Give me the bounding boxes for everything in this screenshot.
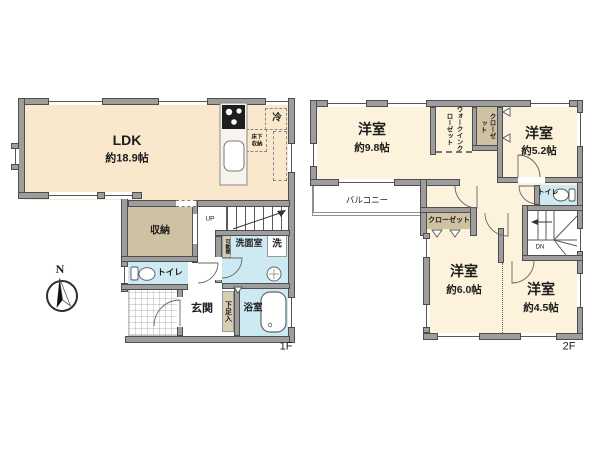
window-bedroom-se-south bbox=[520, 333, 557, 340]
window-bedroom-sw-west-2 bbox=[423, 304, 430, 328]
entrance-porch-tiles bbox=[128, 289, 180, 336]
bedroom-se-size-label: 約4.5帖 bbox=[523, 302, 559, 314]
window-bedroom-ne-east bbox=[577, 112, 583, 147]
wall-closet-north-east bbox=[497, 107, 503, 183]
closet-north-label: クローゼット bbox=[478, 113, 496, 139]
bathroom-label: 浴室 bbox=[243, 304, 262, 315]
wall-1f-west bbox=[18, 98, 25, 199]
wall-stairs2f-north bbox=[522, 205, 583, 211]
wall-corridor-stub bbox=[498, 228, 504, 263]
wall-1f-ldk-hall bbox=[128, 200, 290, 207]
wall-stairs2f-west bbox=[522, 205, 528, 258]
floor2-label: 2F bbox=[563, 341, 576, 354]
bedroom-sw-label: 洋室 bbox=[450, 263, 478, 279]
opening-washroom-door bbox=[215, 257, 222, 280]
floor-plan: LDK 約18.9帖 収納 トイレ 玄関 下足入 浴室 洗面室 洗 床下収納 冷… bbox=[0, 0, 600, 450]
window-bedroom-nw-north-1 bbox=[327, 100, 367, 107]
ldk-size-label: 約18.9帖 bbox=[105, 153, 148, 166]
wall-wic-west bbox=[430, 107, 436, 155]
balcony-label: バルコニー bbox=[346, 196, 388, 206]
window-bedroom-se-east bbox=[577, 273, 583, 308]
entrance-label: 玄関 bbox=[191, 303, 213, 316]
window-kitchen-north bbox=[265, 98, 289, 105]
compass-icon bbox=[45, 276, 79, 313]
washroom-label: 洗面室 bbox=[235, 238, 262, 248]
cupboard-space bbox=[273, 131, 287, 181]
wall-stairs2f-south bbox=[522, 255, 583, 261]
window-bathroom-east bbox=[288, 297, 295, 328]
divider-bedroom-sw-se bbox=[502, 263, 504, 333]
toilet2f-label: トイレ bbox=[538, 189, 559, 197]
wall-closet-south-north bbox=[420, 207, 477, 213]
refrigerator-label: 冷 bbox=[272, 114, 282, 125]
bedroom-nw-size-label: 約9.8帖 bbox=[354, 142, 390, 154]
underfloor-storage-label: 床下収納 bbox=[251, 135, 264, 148]
washing-machine-label: 洗 bbox=[272, 240, 282, 251]
window-kitchen-east bbox=[288, 143, 295, 173]
window-ldk-south-2 bbox=[104, 192, 133, 199]
wall-bathroom-west bbox=[234, 289, 240, 336]
window-bedroom-nw-north-2 bbox=[387, 100, 427, 107]
window-ldk-north-1 bbox=[48, 98, 103, 105]
bedroom-ne-label: 洋室 bbox=[525, 125, 553, 141]
opening-bedroom-ne-door bbox=[518, 177, 545, 183]
bedroom-ne-size-label: 約5.2帖 bbox=[521, 145, 557, 157]
window-bedroom-ne-north bbox=[530, 100, 570, 107]
opening-entrance-door bbox=[177, 297, 183, 327]
window-stairs2f-east bbox=[577, 228, 583, 252]
shoe-cabinet-label: 下足入 bbox=[224, 293, 233, 329]
window-ldk-west-bay bbox=[11, 148, 19, 165]
bedroom-sw-size-label: 約6.0帖 bbox=[446, 284, 482, 296]
stairs-up-floor bbox=[226, 207, 288, 230]
window-bedroom-sw-south bbox=[437, 333, 480, 340]
balcony-sliding-door bbox=[338, 179, 395, 186]
toilet1f-label: トイレ bbox=[157, 268, 183, 278]
opening-ldk-hall bbox=[176, 200, 196, 207]
floor1-label: 1F bbox=[280, 341, 293, 354]
walk-in-closet-label: ウォークインクローゼット bbox=[443, 105, 463, 153]
window-bedroom-nw-west bbox=[310, 143, 317, 167]
closet-south-label: クローゼット bbox=[428, 217, 470, 225]
window-toilet1f-west bbox=[121, 266, 128, 284]
wall-1f-south bbox=[125, 336, 290, 343]
wall-closet-south-east bbox=[470, 207, 477, 236]
stairs-up-label: UP bbox=[205, 215, 214, 222]
storage-label: 収納 bbox=[150, 225, 170, 237]
bedroom-se-label: 洋室 bbox=[527, 281, 555, 297]
movable-shelf-label: 可動棚 bbox=[225, 235, 230, 257]
ldk-floor bbox=[25, 105, 288, 200]
bedroom-nw-label: 洋室 bbox=[358, 121, 386, 137]
compass-north-label: N bbox=[56, 263, 65, 277]
window-ldk-south-1 bbox=[48, 192, 98, 199]
window-ldk-north-2 bbox=[158, 98, 208, 105]
wall-storage-south bbox=[121, 256, 198, 262]
window-bedroom-sw-west-1 bbox=[423, 238, 430, 258]
wall-washroom-south bbox=[222, 283, 290, 289]
ldk-label: LDK bbox=[113, 132, 142, 148]
door-storage-sliding bbox=[192, 214, 198, 244]
stairs-down-label: DN bbox=[536, 245, 545, 252]
